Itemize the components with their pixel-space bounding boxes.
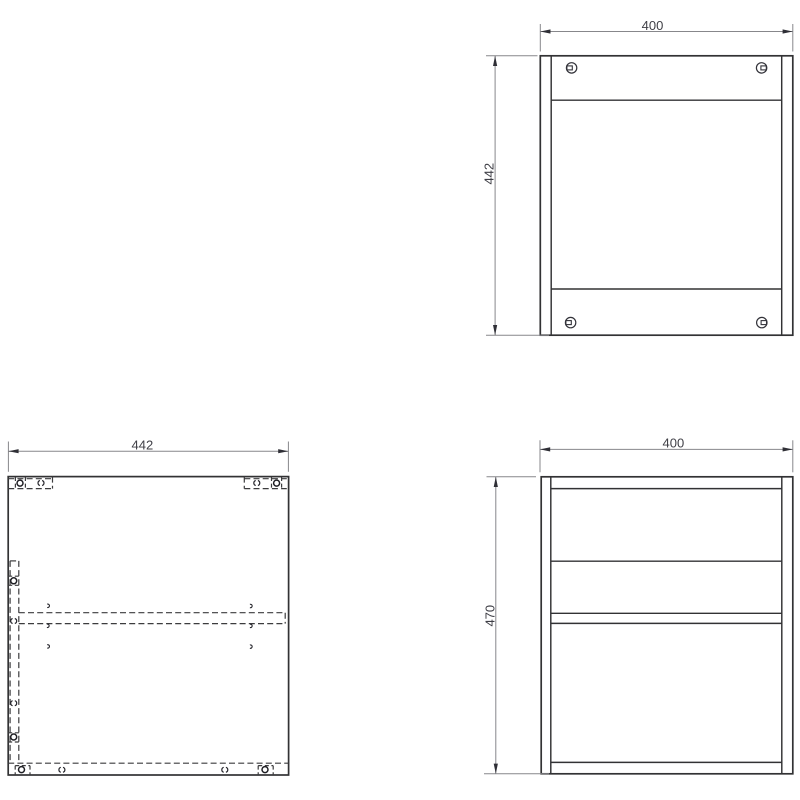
svg-text:442: 442 <box>132 437 154 452</box>
svg-text:400: 400 <box>642 18 664 33</box>
svg-text:442: 442 <box>482 163 497 185</box>
svg-text:400: 400 <box>663 436 685 451</box>
svg-text:470: 470 <box>482 605 497 627</box>
